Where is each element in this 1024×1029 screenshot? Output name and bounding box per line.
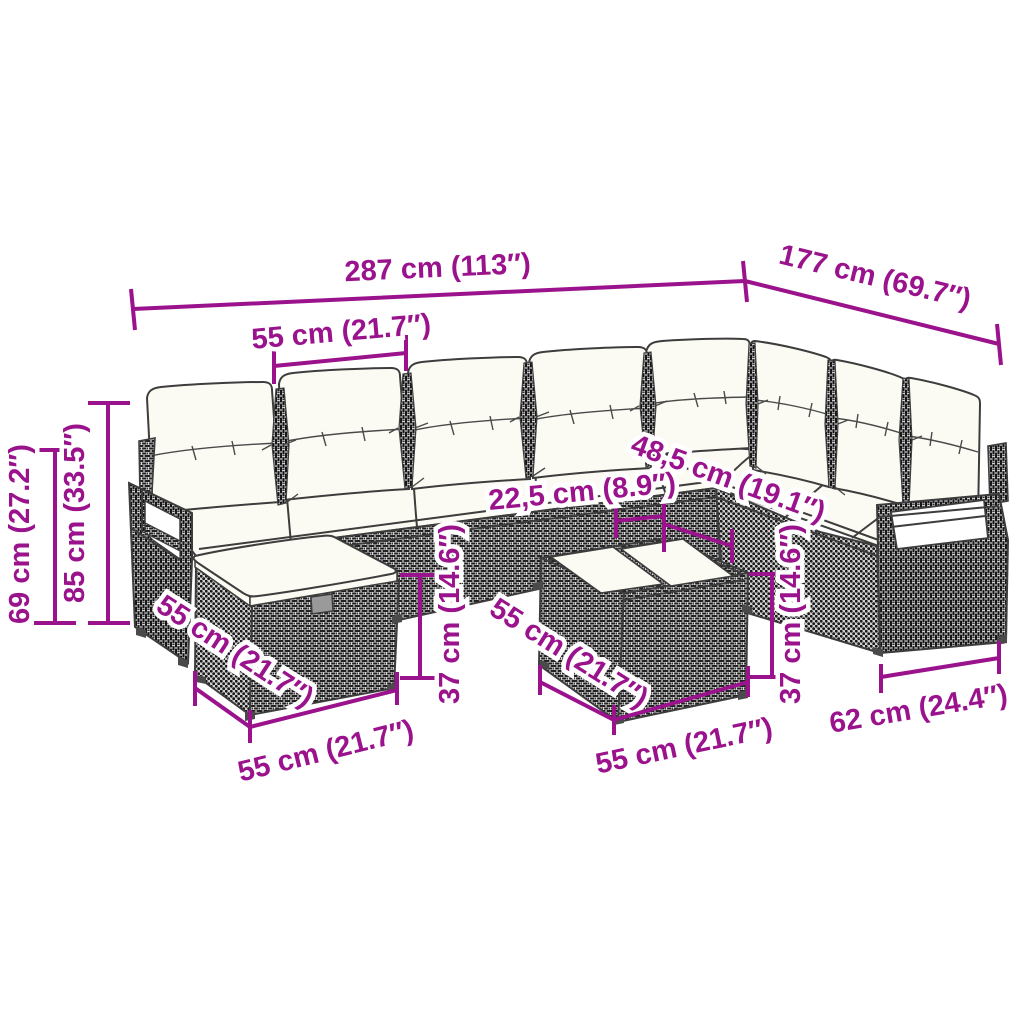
svg-text:37 cm (14.6″): 37 cm (14.6″): [434, 524, 466, 704]
svg-text:85 cm (33.5″): 85 cm (33.5″): [59, 423, 91, 603]
svg-text:37 cm (14.6″): 37 cm (14.6″): [775, 524, 807, 704]
svg-text:69 cm (27.2″): 69 cm (27.2″): [4, 444, 36, 624]
